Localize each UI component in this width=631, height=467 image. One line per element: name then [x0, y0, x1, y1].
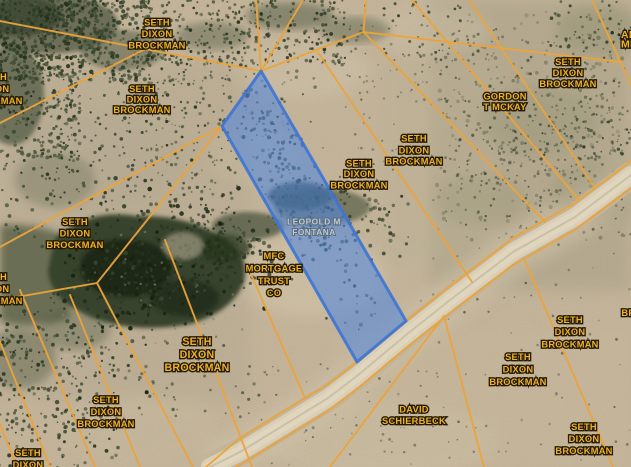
svg-text:DIXON: DIXON [60, 229, 91, 239]
svg-text:BROCKMAN: BROCKMAN [0, 96, 23, 106]
svg-text:DIXON: DIXON [0, 84, 9, 94]
svg-text:BROCKMAN: BROCKMAN [539, 79, 596, 89]
svg-text:BROCKMAN: BROCKMAN [541, 340, 598, 350]
svg-text:BROCKMAN: BROCKMAN [621, 308, 631, 318]
svg-text:SETH: SETH [346, 158, 372, 168]
svg-text:FONTANA: FONTANA [292, 227, 335, 237]
svg-text:DIXON: DIXON [13, 460, 44, 467]
svg-text:SETH: SETH [401, 134, 427, 144]
svg-text:BROCKMAN: BROCKMAN [385, 157, 442, 167]
svg-text:SETH: SETH [571, 422, 597, 432]
svg-text:DIXON: DIXON [399, 145, 430, 155]
svg-text:DIXON: DIXON [180, 349, 215, 361]
svg-text:SETH: SETH [62, 217, 88, 227]
svg-text:MFC: MFC [264, 251, 285, 261]
svg-text:SETH: SETH [0, 72, 7, 82]
svg-text:T MCKAY: T MCKAY [483, 102, 527, 112]
svg-text:BROCKMAN: BROCKMAN [0, 296, 23, 306]
svg-text:SETH: SETH [144, 18, 170, 28]
svg-text:SETH: SETH [182, 336, 211, 348]
svg-text:MORTGAGE: MORTGAGE [246, 264, 303, 274]
svg-text:BROCKMAN: BROCKMAN [77, 419, 134, 429]
svg-text:SETH: SETH [505, 352, 531, 362]
svg-text:MER: MER [621, 39, 631, 51]
svg-text:DIXON: DIXON [0, 284, 9, 294]
svg-text:SETH: SETH [0, 272, 7, 282]
svg-text:DIXON: DIXON [91, 407, 122, 417]
svg-text:SETH: SETH [15, 448, 41, 458]
svg-text:SETH: SETH [129, 84, 155, 94]
svg-text:GORDON: GORDON [483, 92, 526, 102]
svg-text:SETH: SETH [557, 315, 583, 325]
svg-text:SETH: SETH [93, 395, 119, 405]
svg-text:BROCKMAN: BROCKMAN [113, 105, 170, 115]
svg-text:BROCKMAN: BROCKMAN [330, 180, 387, 190]
svg-text:DIXON: DIXON [127, 95, 158, 105]
svg-text:BROCKMAN: BROCKMAN [128, 41, 185, 51]
svg-text:SCHIERBECK: SCHIERBECK [382, 416, 446, 426]
svg-text:DIXON: DIXON [553, 68, 584, 78]
svg-text:CO: CO [267, 288, 281, 298]
svg-text:DIXON: DIXON [555, 327, 586, 337]
svg-text:DAVID: DAVID [399, 405, 429, 415]
svg-text:BROCKMAN: BROCKMAN [489, 377, 546, 387]
svg-text:DIXON: DIXON [142, 29, 173, 39]
svg-text:TRUST: TRUST [258, 276, 290, 286]
svg-text:BROCKMAN: BROCKMAN [165, 362, 230, 374]
svg-text:DIXON: DIXON [344, 169, 375, 179]
svg-text:BROCKMAN: BROCKMAN [46, 240, 103, 250]
svg-text:DIXON: DIXON [569, 434, 600, 444]
svg-text:SETH: SETH [555, 57, 581, 67]
svg-text:DIXON: DIXON [503, 365, 534, 375]
svg-text:BROCKMAN: BROCKMAN [555, 446, 612, 456]
svg-text:LEOPOLD M: LEOPOLD M [287, 217, 341, 227]
